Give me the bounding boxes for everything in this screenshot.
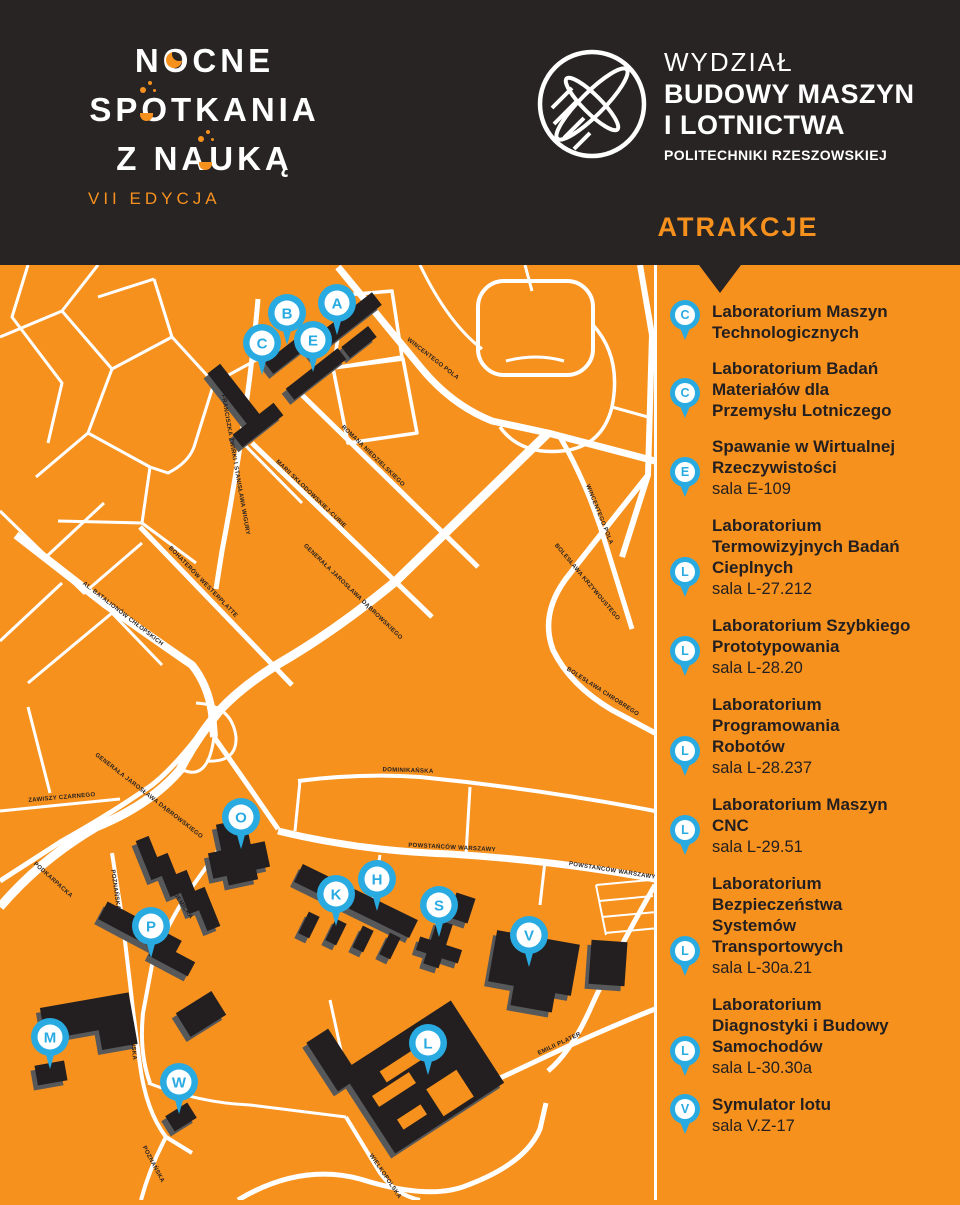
attraction-pin-icon: C <box>670 300 700 330</box>
event-title-line3: Z NAUKĄ <box>52 134 357 183</box>
faculty-line1: WYDZIAŁ <box>664 46 915 79</box>
attraction-text: Spawanie w Wirtualnej Rzeczywistości sal… <box>712 436 924 500</box>
attraction-pin-icon: L <box>670 557 700 587</box>
event-title-line1: NOCNE <box>52 36 357 85</box>
attraction-pin-stem <box>680 585 690 597</box>
attraction-item: L Laboratorium Szybkiego Prototypowania … <box>670 615 948 679</box>
street-label: BOHATERÓW WESTERPLATTE <box>167 544 240 619</box>
attraction-room: sala L-28.20 <box>712 658 924 679</box>
map-pin-letter: B <box>282 306 293 323</box>
header: NOCNE SPOTKANIA Z NAUKĄ VII EDYCJA WYDZI… <box>0 0 960 265</box>
faculty-line2: BUDOWY MASZYN <box>664 79 915 110</box>
map-pin-letter: W <box>172 1075 187 1092</box>
map-pin-letter: H <box>372 872 383 889</box>
attraction-pin-circle: L <box>675 562 695 582</box>
attraction-room: sala L-28.237 <box>712 758 924 779</box>
attraction-item: V Symulator lotu sala V.Z-17 <box>670 1094 948 1137</box>
attraction-pin-stem <box>680 1064 690 1076</box>
map-pin-W: W <box>160 1063 198 1114</box>
attraction-item: L Laboratorium Termowizyjnych Badań Ciep… <box>670 515 948 600</box>
street-label: AL. BATALIONÓW CHŁOPSKICH <box>81 579 165 647</box>
attraction-text: Laboratorium Programowania Robotów sala … <box>712 694 924 779</box>
attraction-pin-stem <box>680 764 690 776</box>
attraction-text: Symulator lotu sala V.Z-17 <box>712 1094 924 1137</box>
building <box>589 940 628 986</box>
attraction-pin-circle: L <box>675 941 695 961</box>
street-label: PODKARPACKA <box>32 861 74 899</box>
attractions-heading: ATRAKCJE <box>638 212 838 243</box>
map-pin-letter: M <box>44 1030 57 1047</box>
attraction-pin-circle: C <box>675 305 695 325</box>
event-title-line2: SPOTKANIA <box>52 85 357 134</box>
attraction-room: sala E-109 <box>712 479 924 500</box>
attraction-pin-icon: L <box>670 1036 700 1066</box>
street-label: BOLESŁAWA CHROBREGO <box>565 667 639 718</box>
attraction-title: Laboratorium Termowizyjnych Badań Ciepln… <box>712 515 924 578</box>
attraction-title: Laboratorium Badań Materiałów dla Przemy… <box>712 358 924 421</box>
attraction-pin-circle: L <box>675 1041 695 1061</box>
event-title-text2: SPOTKANIA <box>89 91 319 128</box>
attraction-pin-circle: L <box>675 641 695 661</box>
street-label: POZNAŃSKA <box>141 1144 167 1184</box>
attraction-pin-icon: V <box>670 1094 700 1124</box>
attraction-pin-stem <box>680 843 690 855</box>
attraction-pin-icon: L <box>670 636 700 666</box>
attraction-title: Laboratorium Maszyn CNC <box>712 794 924 836</box>
attraction-text: Laboratorium Maszyn Technologicznych <box>712 301 924 343</box>
attraction-pin-letter: C <box>680 386 689 400</box>
attraction-pin-circle: C <box>675 383 695 403</box>
attraction-pin-letter: L <box>681 1044 689 1058</box>
event-edition: VII EDYCJA <box>52 189 357 209</box>
attraction-pin-letter: E <box>681 465 689 479</box>
attraction-pin-stem <box>680 406 690 418</box>
attraction-text: Laboratorium Diagnostyki i Budowy Samoch… <box>712 994 924 1079</box>
attraction-item: L Laboratorium Maszyn CNC sala L-29.51 <box>670 794 948 858</box>
attraction-pin-icon: L <box>670 936 700 966</box>
attraction-text: Laboratorium Badań Materiałów dla Przemy… <box>712 358 924 421</box>
attractions-pointer-triangle <box>699 265 741 293</box>
attraction-text: Laboratorium Szybkiego Prototypowania sa… <box>712 615 924 679</box>
attraction-pin-circle: L <box>675 741 695 761</box>
attraction-pin-stem <box>680 328 690 340</box>
map-pin-letter: K <box>331 887 342 904</box>
building <box>342 1001 504 1154</box>
attraction-title: Symulator lotu <box>712 1094 924 1115</box>
attraction-title: Laboratorium Programowania Robotów <box>712 694 924 757</box>
map-pin-letter: L <box>423 1036 432 1053</box>
attraction-pin-stem <box>680 1122 690 1134</box>
attraction-pin-circle: V <box>675 1099 695 1119</box>
attraction-pin-stem <box>680 485 690 497</box>
attraction-pin-letter: L <box>681 944 689 958</box>
attraction-pin-stem <box>680 964 690 976</box>
street-label: ROMANA NIEDZIELSKIEGO <box>340 424 406 488</box>
attraction-pin-circle: E <box>675 462 695 482</box>
event-logo: NOCNE SPOTKANIA Z NAUKĄ VII EDYCJA <box>52 36 357 209</box>
map-pin-S: S <box>420 886 458 937</box>
attraction-pin-icon: E <box>670 457 700 487</box>
map-pin-letter: C <box>257 336 268 353</box>
map-pin-K: K <box>317 875 355 926</box>
attraction-title: Laboratorium Szybkiego Prototypowania <box>712 615 924 657</box>
faculty-propeller-logo-icon <box>534 46 650 162</box>
attraction-text: Laboratorium Maszyn CNC sala L-29.51 <box>712 794 924 858</box>
attraction-pin-letter: C <box>680 308 689 322</box>
attraction-pin-icon: L <box>670 736 700 766</box>
attraction-room: sala L-30.30a <box>712 1058 924 1079</box>
attraction-pin-stem <box>680 664 690 676</box>
attraction-pin-circle: L <box>675 820 695 840</box>
campus-map-svg: WINCENTEGO POLAWINCENTEGO POLAROMANA NIE… <box>0 265 655 1200</box>
attraction-room: sala L-27.212 <box>712 579 924 600</box>
attraction-room: sala L-29.51 <box>712 837 924 858</box>
street-label: MARII SKŁODOWSKIEJ-CURIE <box>274 459 347 529</box>
event-title-text3: Z NAUKĄ <box>116 140 292 177</box>
map-pin-letter: E <box>308 333 318 350</box>
attraction-pin-letter: L <box>681 644 689 658</box>
attractions-list: C Laboratorium Maszyn Technologicznych C… <box>670 300 948 1152</box>
attraction-title: Laboratorium Diagnostyki i Budowy Samoch… <box>712 994 924 1057</box>
attraction-item: L Laboratorium Programowania Robotów sal… <box>670 694 948 779</box>
attraction-text: Laboratorium Termowizyjnych Badań Ciepln… <box>712 515 924 600</box>
attraction-pin-letter: L <box>681 823 689 837</box>
map-pin-letter: P <box>146 919 156 936</box>
attraction-item: C Laboratorium Maszyn Technologicznych <box>670 300 948 343</box>
attraction-title: Spawanie w Wirtualnej Rzeczywistości <box>712 436 924 478</box>
map-pin-letter: A <box>332 296 343 313</box>
campus-map: WINCENTEGO POLAWINCENTEGO POLAROMANA NIE… <box>0 265 655 1200</box>
street-label: DOMINIKAŃSKA <box>382 765 434 775</box>
attraction-item: L Laboratorium Bezpieczeństwa Systemów T… <box>670 873 948 979</box>
attraction-pin-letter: L <box>681 565 689 579</box>
street-label: WIELKOPOLSKA <box>368 1153 403 1200</box>
attraction-item: C Laboratorium Badań Materiałów dla Prze… <box>670 358 948 421</box>
attraction-room: sala V.Z-17 <box>712 1116 924 1137</box>
attraction-pin-icon: C <box>670 378 700 408</box>
faculty-line3: I LOTNICTWA <box>664 110 915 141</box>
attraction-pin-letter: V <box>681 1102 689 1116</box>
map-pin-letter: O <box>235 810 247 827</box>
attraction-item: L Laboratorium Diagnostyki i Budowy Samo… <box>670 994 948 1079</box>
attraction-pin-letter: L <box>681 744 689 758</box>
attraction-room: sala L-30a.21 <box>712 958 924 979</box>
attraction-pin-icon: L <box>670 815 700 845</box>
faculty-line4: POLITECHNIKI RZESZOWSKIEJ <box>664 147 915 163</box>
attraction-title: Laboratorium Maszyn Technologicznych <box>712 301 924 343</box>
map-pin-letter: V <box>524 928 534 945</box>
attraction-text: Laboratorium Bezpieczeństwa Systemów Tra… <box>712 873 924 979</box>
attraction-title: Laboratorium Bezpieczeństwa Systemów Tra… <box>712 873 924 957</box>
attraction-item: E Spawanie w Wirtualnej Rzeczywistości s… <box>670 436 948 500</box>
map-pin-letter: S <box>434 898 444 915</box>
event-title-text1: NOCNE <box>135 42 274 79</box>
faculty-name: WYDZIAŁ BUDOWY MASZYN I LOTNICTWA POLITE… <box>664 46 915 163</box>
